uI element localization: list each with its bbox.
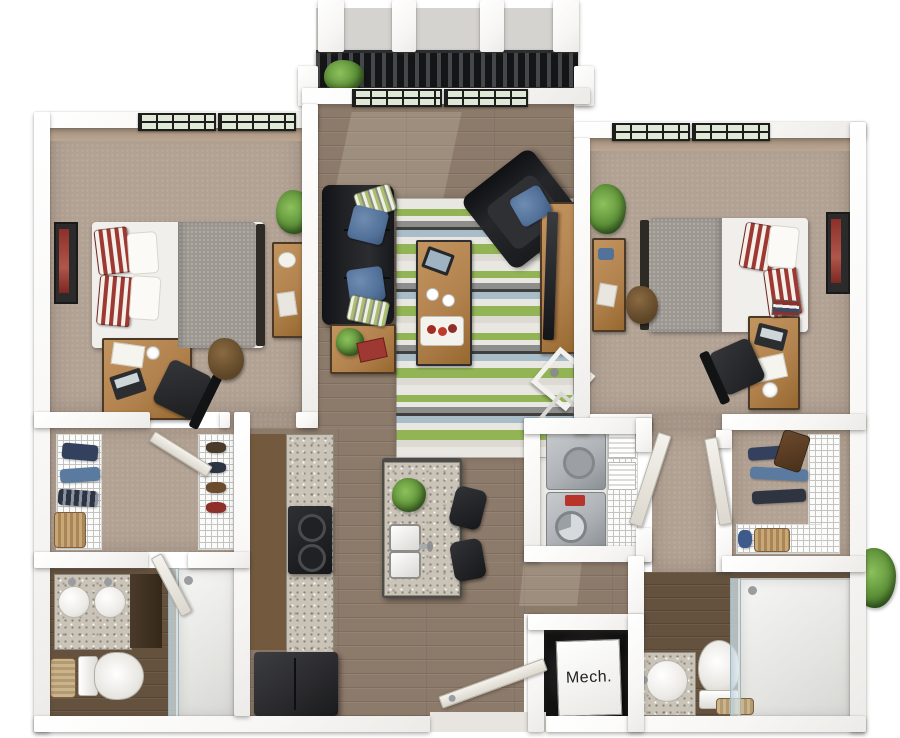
wall-bottom-right xyxy=(546,716,866,732)
wall-bedroomright-south-b xyxy=(722,414,866,430)
apple xyxy=(438,327,447,336)
apartment-floor-plan: Mech. xyxy=(0,0,900,738)
island-plant xyxy=(392,478,426,512)
washer xyxy=(546,492,606,550)
faucet xyxy=(104,578,112,586)
apple xyxy=(427,325,436,334)
artwork-canvas xyxy=(59,229,69,293)
wall-laundry-top xyxy=(524,418,652,434)
balcony-french-door xyxy=(352,89,442,107)
hanging-clothes xyxy=(57,489,98,508)
bedroom-right-window xyxy=(692,123,770,141)
washer-dial xyxy=(555,511,587,543)
door-knob xyxy=(448,694,457,703)
wall-living-bedroomright xyxy=(574,138,590,434)
shoes xyxy=(738,530,752,548)
shower-right xyxy=(738,578,854,720)
bedroom-right-door-threshold xyxy=(652,414,722,430)
stove xyxy=(288,506,332,574)
wall-closet-bath-left-a xyxy=(34,552,148,568)
sink xyxy=(94,586,126,618)
bedroom-left-window xyxy=(138,113,216,131)
artwork-left xyxy=(54,222,78,304)
refrigerator xyxy=(254,652,338,716)
shower-head xyxy=(184,576,193,585)
shower-left xyxy=(176,568,238,720)
wall-desk-left-items xyxy=(278,252,296,268)
bed-right-gray-blanket xyxy=(648,218,722,332)
wall-bedroomleft-south-c xyxy=(296,412,318,428)
bedroom-right-window xyxy=(612,123,690,141)
balcony-post xyxy=(553,0,579,52)
wall-laundry-right-stub xyxy=(636,418,652,452)
bed-right-books xyxy=(771,299,800,317)
desk-papers xyxy=(111,342,146,368)
detergent xyxy=(565,495,585,506)
backpack-left xyxy=(208,338,244,380)
bed-left-white-pillow xyxy=(127,231,160,275)
living-room-window xyxy=(444,89,528,107)
wall-bottom-left xyxy=(34,716,430,732)
mech-label: Mech. xyxy=(566,668,613,688)
bed-left-striped-pillow xyxy=(93,226,132,276)
burner xyxy=(298,544,326,572)
closet-basket xyxy=(54,512,86,548)
shower-head xyxy=(748,586,757,595)
apple xyxy=(448,324,457,333)
bath-mat xyxy=(50,658,76,698)
wall-desk-right-items xyxy=(596,283,618,308)
bedroom-right-plant xyxy=(588,184,626,234)
balcony-post xyxy=(392,0,416,52)
laundry-basket xyxy=(608,462,636,490)
toilet-bowl xyxy=(94,652,144,700)
laundry-basket xyxy=(608,432,636,458)
coffee-table-mug xyxy=(426,288,439,301)
bed-left-white-pillow xyxy=(129,275,162,321)
mech-unit: Mech. xyxy=(556,639,623,717)
balcony-post xyxy=(480,0,504,52)
coffee-table-tray xyxy=(420,316,464,346)
desk-plate xyxy=(762,382,778,398)
closet-basket xyxy=(754,528,790,552)
bed-left-gray-blanket xyxy=(178,222,256,348)
wall-desk-right-items xyxy=(598,248,614,260)
wall-mech-top xyxy=(528,614,644,630)
sink xyxy=(58,586,90,618)
wall-closet-bath-right xyxy=(722,556,866,572)
bed-left-striped-pillow xyxy=(96,275,134,328)
shoes xyxy=(206,482,226,493)
vanity-left-cabinet xyxy=(130,574,162,648)
hanging-clothes xyxy=(61,442,98,461)
wall-desk-left-items xyxy=(276,291,297,317)
bed-left-frame xyxy=(256,224,265,346)
coffee-table-mug xyxy=(442,294,455,307)
island-sink xyxy=(389,524,419,576)
shower-right-glass xyxy=(730,578,741,718)
wall-laundry-left xyxy=(524,418,540,562)
dryer xyxy=(546,432,606,490)
sink-basin xyxy=(389,524,421,552)
sink xyxy=(646,660,688,702)
burner xyxy=(298,514,326,542)
wall-closet-bath-left-b xyxy=(188,552,250,568)
faucet xyxy=(68,578,76,586)
sink-basin xyxy=(389,551,421,579)
hanging-clothes xyxy=(60,467,101,484)
desk-mug xyxy=(146,346,160,360)
wall-bedroomleft-living xyxy=(302,104,318,428)
balcony-post xyxy=(318,0,344,52)
bar-stool xyxy=(449,538,487,583)
bed-right-white-pillow xyxy=(766,225,800,270)
artwork-right xyxy=(826,212,850,294)
faucet xyxy=(427,541,433,552)
wall-bedroomleft-south-a xyxy=(34,412,150,428)
shoes xyxy=(206,442,226,453)
backpack-right xyxy=(626,286,658,324)
toilet-left xyxy=(78,652,144,698)
bedroom-left-window xyxy=(218,113,296,131)
shoes xyxy=(206,502,226,513)
artwork-canvas xyxy=(831,219,841,283)
wall-bedroomleft-south-b xyxy=(220,412,230,428)
kitchen-cabinets xyxy=(250,434,288,650)
wall-mech-right xyxy=(628,614,644,732)
